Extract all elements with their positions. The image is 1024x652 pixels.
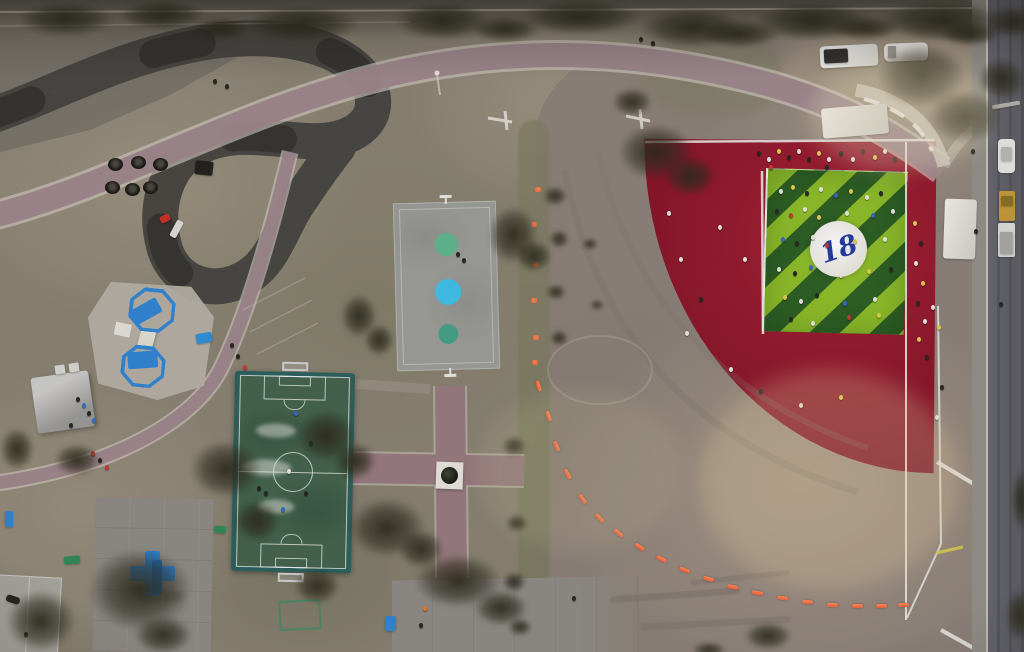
- person-dot: [679, 257, 683, 262]
- person-dot: [779, 189, 783, 194]
- machine-cab: [1001, 196, 1013, 206]
- person-dot: [264, 491, 268, 496]
- tree: [549, 230, 569, 248]
- person-dot: [825, 165, 829, 170]
- person-dot: [799, 299, 803, 304]
- tree: [508, 618, 532, 636]
- tire-obstacle: [131, 156, 146, 169]
- tree: [830, 16, 900, 40]
- tree: [744, 622, 792, 650]
- person-dot: [971, 149, 975, 154]
- person-dot: [572, 596, 576, 601]
- person-dot: [456, 252, 460, 257]
- person-dot: [236, 354, 240, 359]
- tree: [502, 572, 526, 592]
- person-dot: [793, 271, 797, 276]
- white-canopy-tent: [821, 103, 889, 139]
- tree: [364, 324, 394, 356]
- person-dot: [817, 215, 821, 220]
- person-dot: [729, 367, 733, 372]
- person-dot: [807, 157, 811, 162]
- tree: [190, 18, 250, 40]
- person-dot: [999, 302, 1003, 307]
- person-dot: [105, 465, 109, 470]
- person-dot: [281, 507, 285, 512]
- person-dot: [873, 155, 877, 160]
- traffic-barrier: [533, 335, 539, 340]
- goal-area-top: [279, 376, 311, 387]
- person-dot: [919, 241, 923, 246]
- playground-structure: [119, 286, 181, 391]
- person-dot: [787, 155, 791, 160]
- person-dot: [783, 295, 787, 300]
- tree: [18, 2, 113, 36]
- traffic-barrier: [802, 600, 813, 605]
- basketball-court: [393, 201, 500, 372]
- blue-bench: [385, 616, 396, 631]
- person-dot: [923, 319, 927, 324]
- infield-edge-line: [762, 171, 763, 334]
- aerial-park-photo: 18: [0, 0, 1024, 652]
- car-roof: [1001, 147, 1012, 161]
- tree: [54, 444, 100, 476]
- person-dot: [294, 411, 298, 416]
- canopy-tarp-shelter: [30, 370, 95, 434]
- person-dot: [883, 237, 887, 242]
- traffic-barrier: [898, 603, 909, 607]
- green-bench: [214, 526, 226, 534]
- person-dot: [825, 243, 829, 248]
- tree: [543, 186, 567, 206]
- person-dot: [791, 185, 795, 190]
- person-dot: [853, 239, 857, 244]
- traffic-barrier: [827, 603, 838, 608]
- person-dot: [419, 623, 423, 628]
- tree: [134, 616, 192, 652]
- white-storage-box: [68, 362, 79, 372]
- tree: [978, 58, 1024, 100]
- ground-white-marks: [937, 462, 977, 650]
- fence-line: [907, 306, 941, 618]
- tree: [928, 90, 1002, 144]
- soccer-goal-top: [282, 362, 308, 372]
- dirt-drag-arc: [598, 152, 868, 448]
- tree: [6, 590, 76, 652]
- person-dot: [839, 395, 843, 400]
- tow-truck-bed: [1000, 232, 1013, 254]
- person-dot: [225, 84, 229, 89]
- tree: [692, 642, 726, 652]
- tree: [0, 428, 34, 470]
- person-dot: [811, 235, 815, 240]
- tree: [294, 568, 340, 604]
- person-dot: [769, 165, 773, 170]
- person-dot: [799, 403, 803, 408]
- person-dot: [87, 411, 91, 416]
- person-dot: [974, 229, 978, 234]
- person-dot: [811, 321, 815, 326]
- traffic-barrier: [535, 187, 541, 192]
- playground-blue-roof: [127, 350, 158, 369]
- tree: [550, 330, 568, 346]
- tree: [334, 442, 376, 480]
- tree: [470, 16, 540, 42]
- person-dot: [789, 317, 793, 322]
- person-dot: [304, 491, 308, 496]
- person-dot: [759, 389, 763, 394]
- traffic-barrier: [532, 360, 538, 365]
- person-dot: [797, 149, 801, 154]
- goal-area-bottom: [275, 558, 307, 569]
- planter-bush: [441, 467, 458, 484]
- person-dot: [815, 293, 819, 298]
- tree: [590, 300, 604, 310]
- person-dot: [809, 265, 813, 270]
- tree: [234, 500, 280, 542]
- white-tent-roadside: [943, 198, 977, 259]
- person-dot: [873, 297, 877, 302]
- person-dot: [891, 209, 895, 214]
- person-dot: [931, 305, 935, 310]
- pickup-truck-bed: [824, 48, 849, 63]
- person-dot: [757, 151, 761, 156]
- person-dot: [685, 331, 689, 336]
- person-dot: [935, 415, 939, 420]
- person-dot: [925, 355, 929, 360]
- tree: [582, 238, 598, 250]
- person-dot: [230, 343, 234, 348]
- person-dot: [213, 79, 217, 84]
- person-dot: [879, 191, 883, 196]
- person-dot: [92, 418, 96, 423]
- tire-obstacle: [153, 158, 168, 171]
- person-dot: [243, 365, 247, 370]
- person-dot: [639, 37, 643, 42]
- person-dot: [847, 315, 851, 320]
- person-dot: [667, 211, 671, 216]
- person-dot: [839, 273, 843, 278]
- tire-obstacle: [125, 183, 140, 196]
- tree: [516, 240, 552, 272]
- person-dot: [839, 151, 843, 156]
- traffic-barrier: [531, 298, 537, 303]
- tree: [245, 6, 360, 42]
- person-dot: [69, 423, 73, 428]
- person-dot: [827, 157, 831, 162]
- person-dot: [795, 241, 799, 246]
- person-dot: [889, 267, 893, 272]
- tree: [664, 156, 716, 196]
- person-dot: [834, 193, 838, 198]
- person-dot: [699, 297, 703, 302]
- green-bench: [64, 555, 81, 564]
- person-dot: [917, 337, 921, 342]
- blue-bench: [5, 511, 13, 527]
- white-storage-box: [54, 364, 65, 374]
- tree: [546, 284, 566, 300]
- basketball-hoop: [440, 195, 452, 198]
- tree: [612, 88, 652, 116]
- tire-obstacle: [143, 181, 158, 194]
- person-dot: [913, 221, 917, 226]
- traffic-barrier: [876, 604, 887, 608]
- dark-mat: [194, 160, 213, 176]
- person-dot: [82, 403, 86, 408]
- person-dot: [871, 213, 875, 218]
- person-dot: [819, 187, 823, 192]
- person-dot: [789, 213, 793, 218]
- person-dot: [845, 211, 849, 216]
- dirt-drag-arc: [565, 170, 858, 492]
- person-dot: [76, 397, 80, 402]
- person-dot: [805, 191, 809, 196]
- person-dot: [781, 237, 785, 242]
- person-dot: [883, 149, 887, 154]
- tree: [1012, 470, 1024, 530]
- person-dot: [843, 301, 847, 306]
- person-dot: [743, 257, 747, 262]
- tree: [190, 440, 262, 498]
- person-dot: [865, 195, 869, 200]
- person-dot: [718, 225, 722, 230]
- tire-obstacle: [108, 158, 123, 171]
- tire-obstacle: [105, 181, 120, 194]
- person-dot: [921, 281, 925, 286]
- traffic-barrier: [852, 604, 863, 608]
- person-dot: [914, 261, 918, 266]
- lamp-post-head: [435, 71, 440, 76]
- person-dot: [767, 157, 771, 162]
- person-dot: [817, 151, 821, 156]
- person-dot: [777, 149, 781, 154]
- tree: [506, 514, 528, 532]
- person-dot: [893, 157, 897, 162]
- basketball-hoop: [444, 374, 456, 377]
- tree: [502, 436, 526, 456]
- person-dot: [803, 207, 807, 212]
- person-dot: [849, 189, 853, 194]
- person-dot: [257, 486, 261, 491]
- tree: [700, 20, 780, 48]
- person-dot: [867, 269, 871, 274]
- person-dot: [851, 157, 855, 162]
- person-dot: [287, 469, 291, 474]
- person-dot: [877, 313, 881, 318]
- person-dot: [462, 258, 466, 263]
- person-dot: [423, 606, 427, 611]
- person-dot: [937, 325, 941, 330]
- person-dot: [775, 209, 779, 214]
- tree: [940, 22, 1000, 46]
- chalk-circle: [548, 336, 652, 404]
- person-dot: [777, 267, 781, 272]
- person-dot: [916, 301, 920, 306]
- person-dot: [861, 149, 865, 154]
- person-dot: [940, 385, 944, 390]
